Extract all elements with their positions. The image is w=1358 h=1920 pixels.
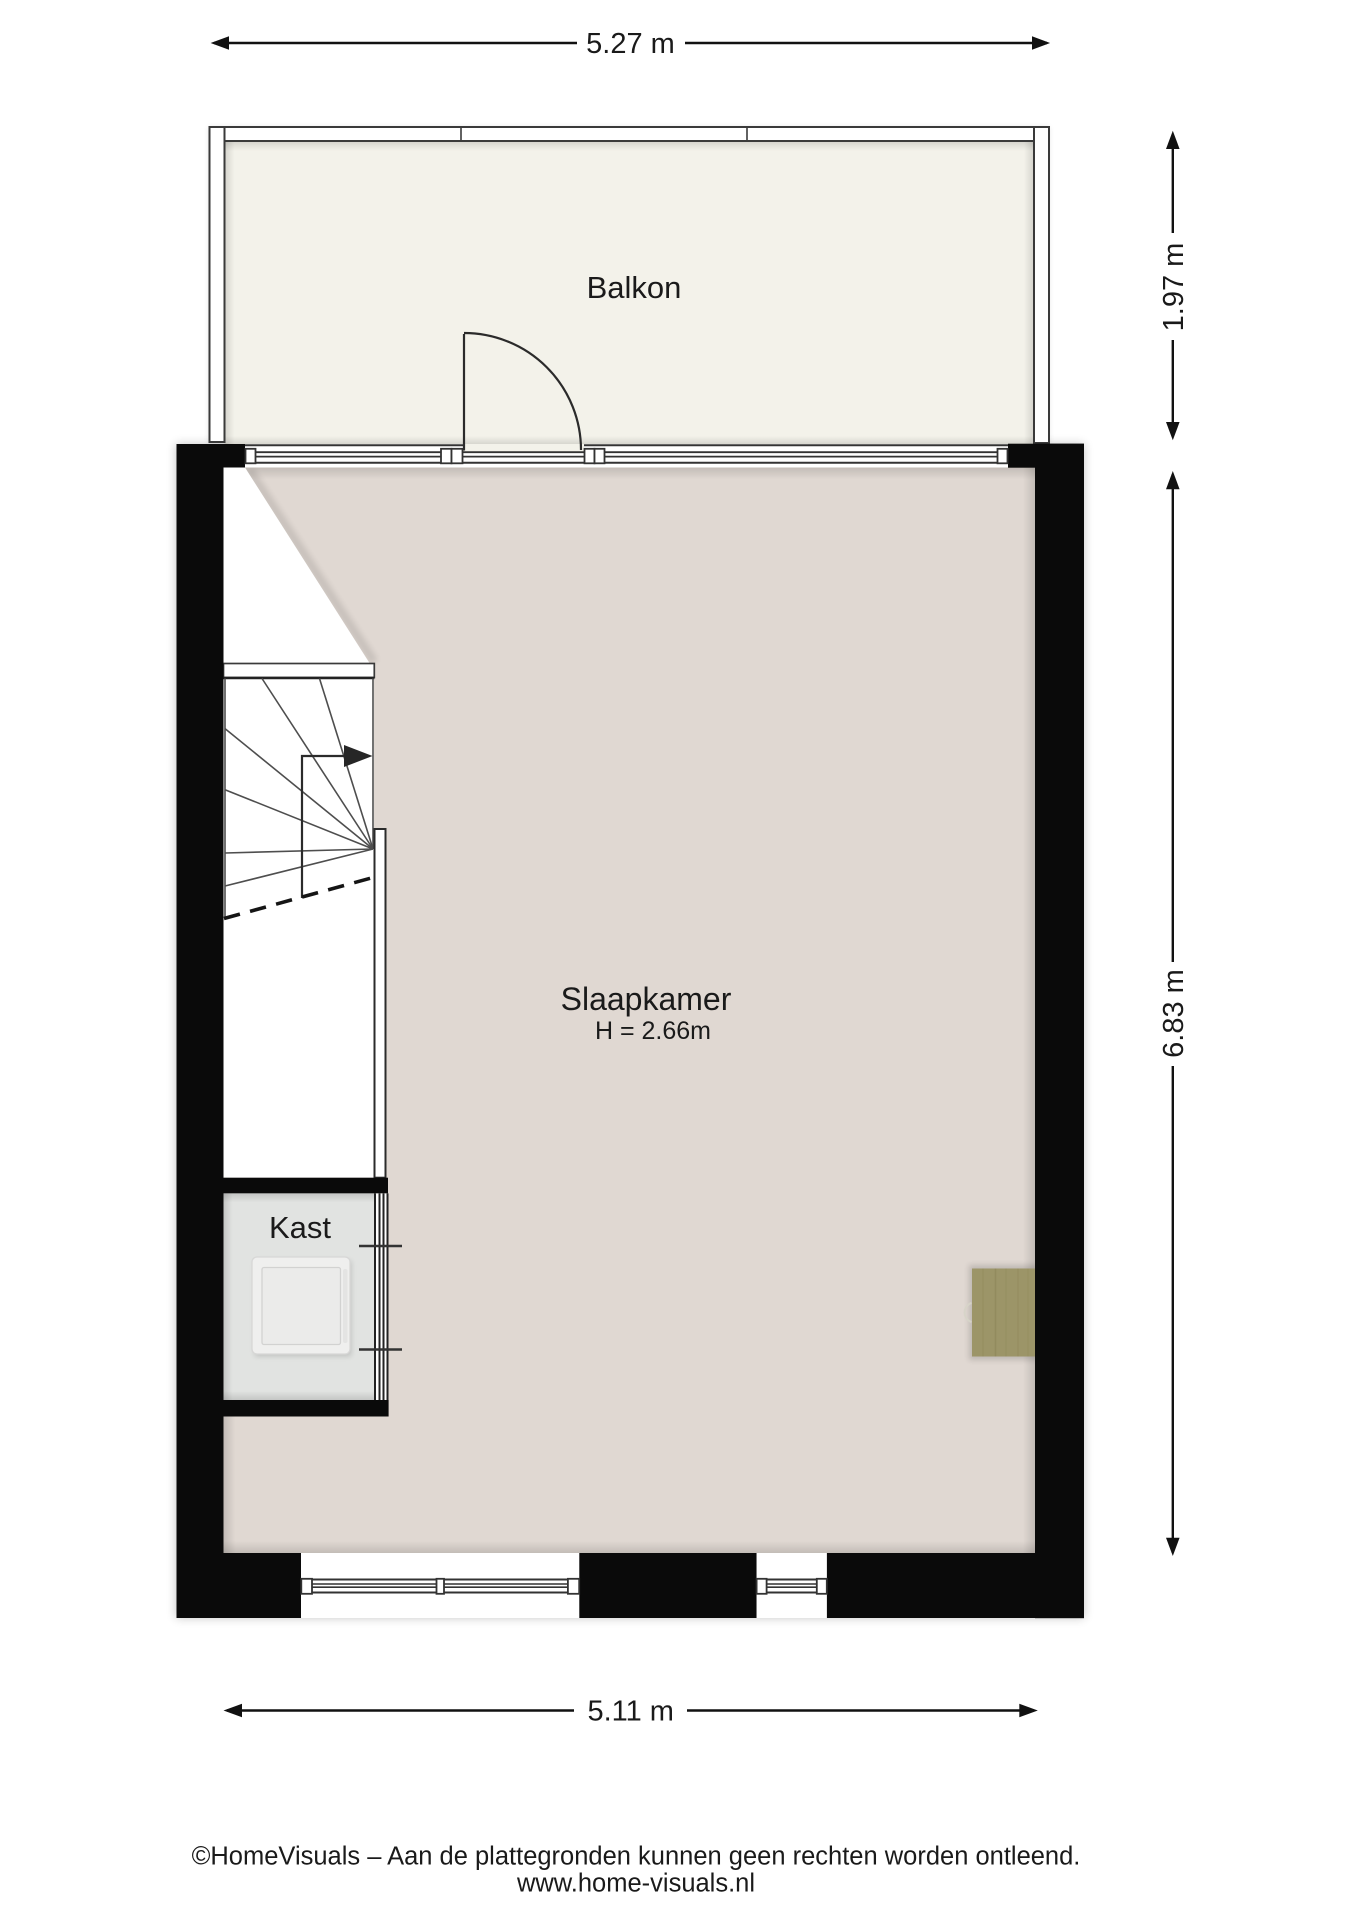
svg-text:5.27 m: 5.27 m bbox=[586, 28, 675, 60]
svg-text:H = 2.66m: H = 2.66m bbox=[595, 1017, 711, 1045]
svg-text:6.83 m: 6.83 m bbox=[1158, 969, 1190, 1058]
svg-text:Slaapkamer: Slaapkamer bbox=[561, 981, 732, 1017]
svg-text:Balkon: Balkon bbox=[587, 270, 682, 305]
svg-text:www.home-visuals.nl: www.home-visuals.nl bbox=[516, 1870, 755, 1898]
svg-text:©HomeVisuals – Aan de plattegr: ©HomeVisuals – Aan de plattegronden kunn… bbox=[192, 1843, 1081, 1871]
svg-text:Kast: Kast bbox=[269, 1210, 331, 1245]
svg-text:5.11 m: 5.11 m bbox=[587, 1696, 674, 1728]
svg-text:1.97 m: 1.97 m bbox=[1158, 243, 1190, 332]
